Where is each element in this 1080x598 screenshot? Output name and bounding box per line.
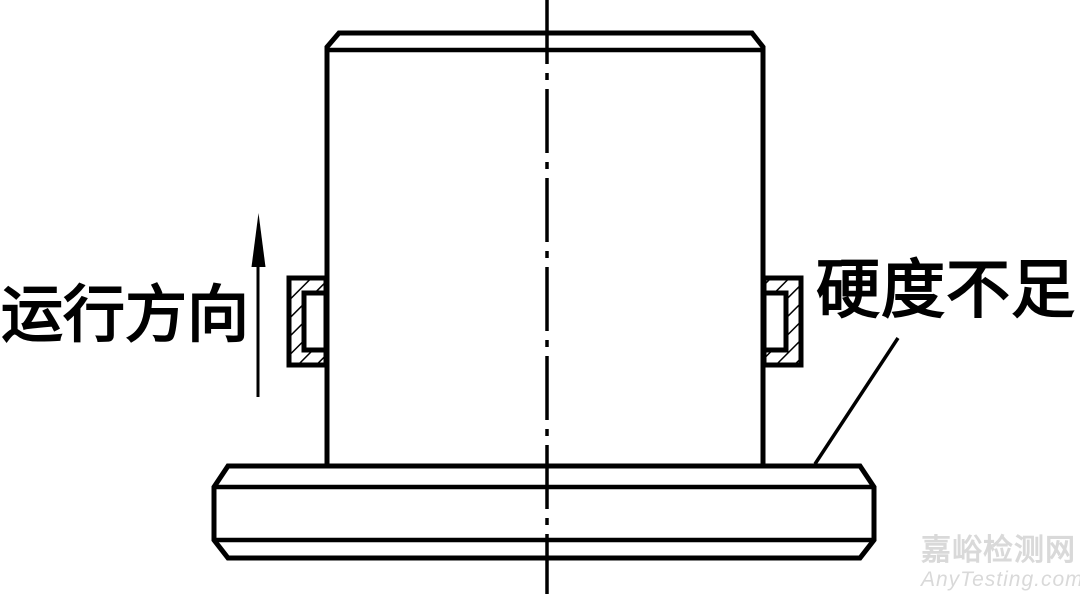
left-lug-section <box>289 278 326 365</box>
hardness-leader-line <box>815 338 898 464</box>
hardness-label: 硬度不足 <box>816 259 1076 323</box>
direction-arrow <box>252 213 266 397</box>
machine-body-outline <box>327 33 763 466</box>
watermark-site-url: AnyTesting.com <box>921 569 1080 590</box>
watermark-site-name: 嘉峪检测网 <box>921 536 1080 566</box>
right-lug-section <box>764 278 801 365</box>
base-plate-outline <box>214 466 874 558</box>
right-lug-inner-slot <box>764 293 786 350</box>
run-direction-label: 运行方向 <box>1 285 249 347</box>
left-lug-inner-slot <box>304 293 326 350</box>
watermark: 嘉峪检测网 AnyTesting.com <box>921 536 1080 590</box>
up-arrow-icon <box>252 213 266 267</box>
technical-drawing-canvas: 运行方向 硬度不足 嘉峪检测网 AnyTesting.com <box>0 0 1080 598</box>
